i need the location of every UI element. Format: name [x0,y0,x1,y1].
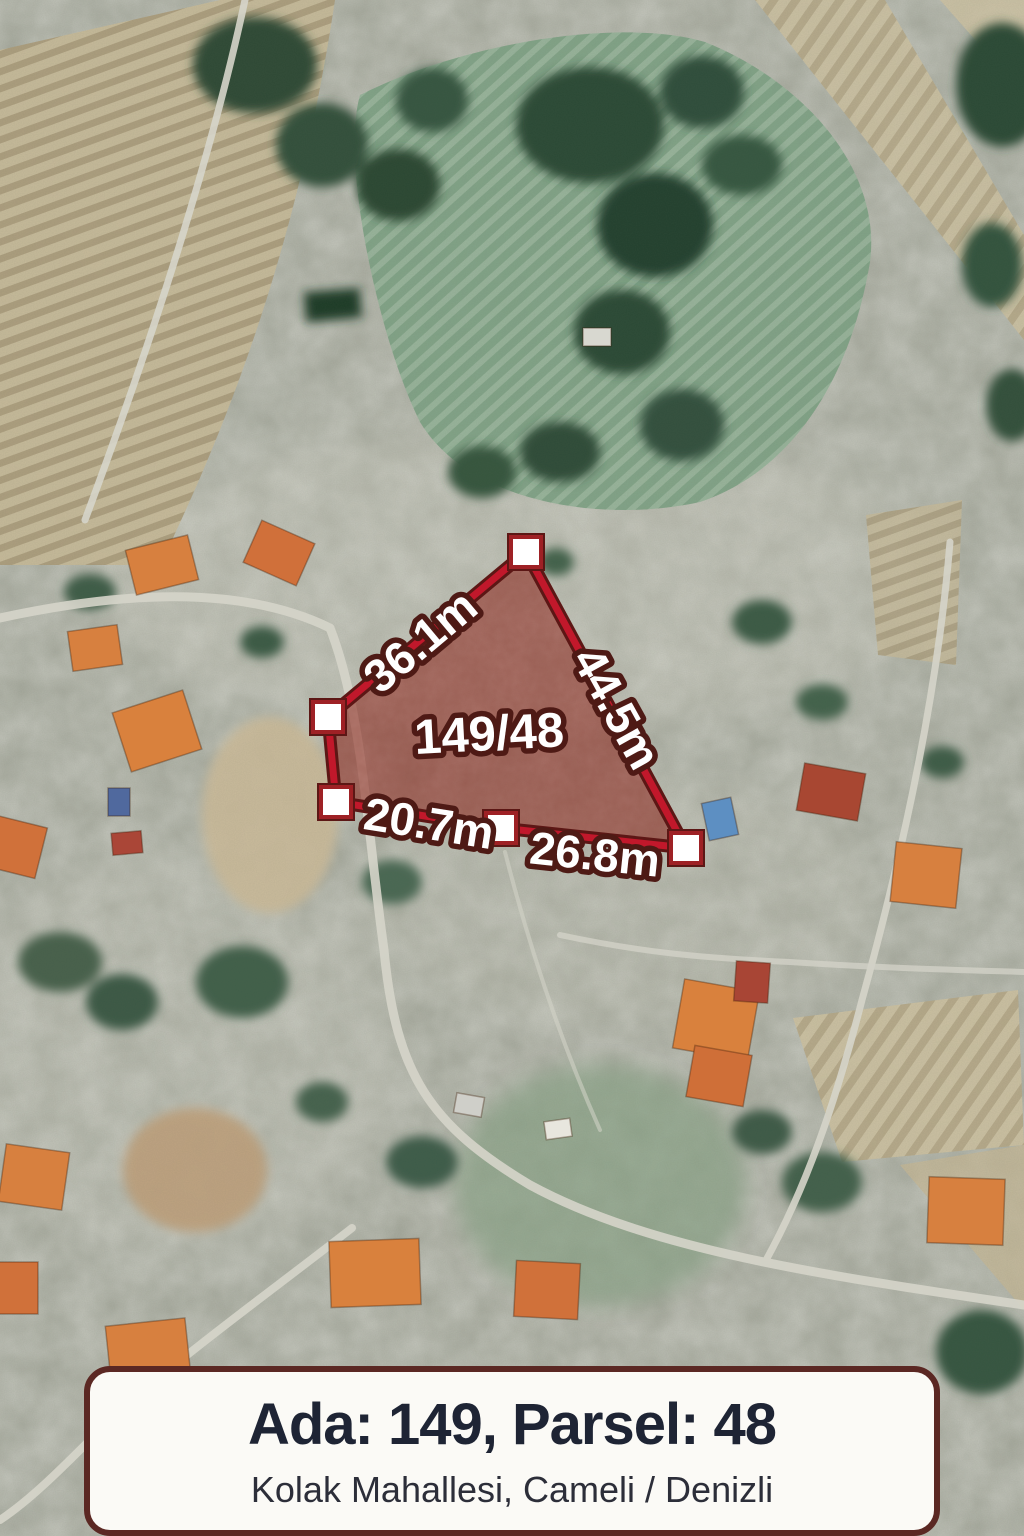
house-roof [514,1260,581,1319]
parcel-vertex-handle [667,829,705,867]
house-roof [890,842,962,909]
house-roof [67,625,122,672]
house-roof [927,1177,1005,1246]
parcel-vertex-handle [317,783,355,821]
shed-roof [583,328,611,346]
shed-roof [734,961,771,1003]
info-card-subtitle: Kolak Mahallesi, Cameli / Denizli [90,1470,934,1510]
house-roof [0,1144,70,1210]
house-roof [796,763,865,821]
shed-roof [544,1118,572,1139]
info-card: Ada: 149, Parsel: 48 Kolak Mahallesi, Ca… [84,1366,940,1536]
house-roof [0,1262,38,1314]
house-roof [686,1045,752,1106]
parcel-vertex-handle [309,698,347,736]
shed-roof [453,1093,484,1118]
info-card-title: Ada: 149, Parsel: 48 [90,1394,934,1456]
satellite-map-image: 36.1m 44.5m 20.7m 26.8m 149/48 [0,0,1024,1536]
listing-screenshot: 36.1m 44.5m 20.7m 26.8m 149/48 Ada: 149,… [0,0,1024,1536]
parcel-id-label: 149/48 [413,703,565,765]
parcel-vertex-handle [507,533,545,571]
shed-roof [108,788,130,816]
house-roof [329,1238,421,1307]
shed-roof [111,831,143,856]
